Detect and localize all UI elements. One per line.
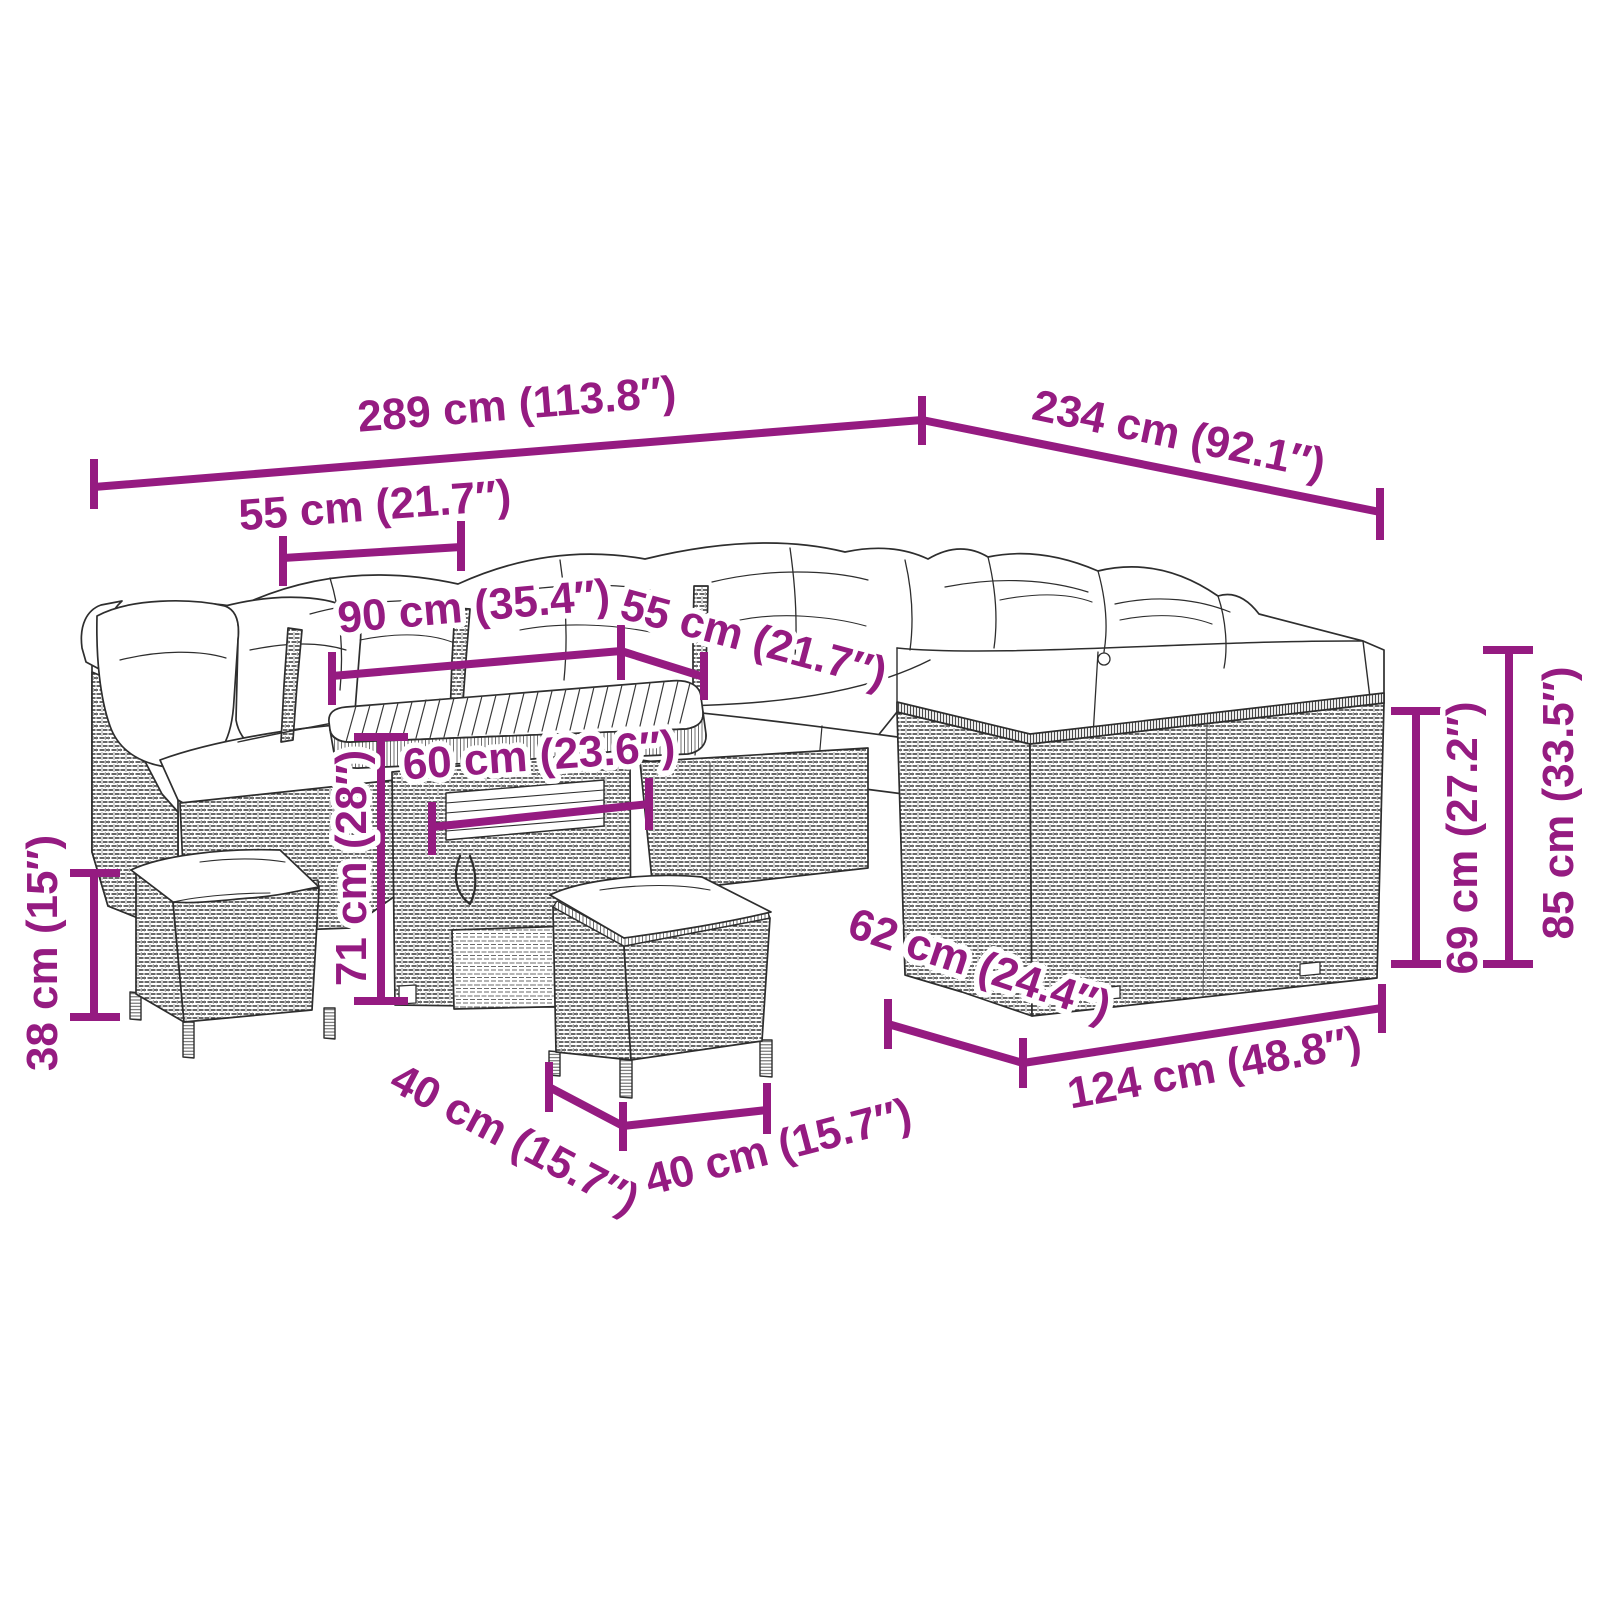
svg-text:71 cm (28″): 71 cm (28″) [327,750,376,986]
svg-text:69 cm (27.2″): 69 cm (27.2″) [1438,701,1487,974]
svg-text:40 cm (15.7″): 40 cm (15.7″) [383,1054,647,1225]
svg-text:40 cm (15.7″): 40 cm (15.7″) [640,1089,917,1205]
svg-text:85 cm (33.5″): 85 cm (33.5″) [1534,666,1583,939]
svg-text:38 cm (15″): 38 cm (15″) [18,835,67,1071]
svg-text:289 cm (113.8″): 289 cm (113.8″) [356,367,678,441]
svg-text:55 cm (21.7″): 55 cm (21.7″) [237,471,513,540]
